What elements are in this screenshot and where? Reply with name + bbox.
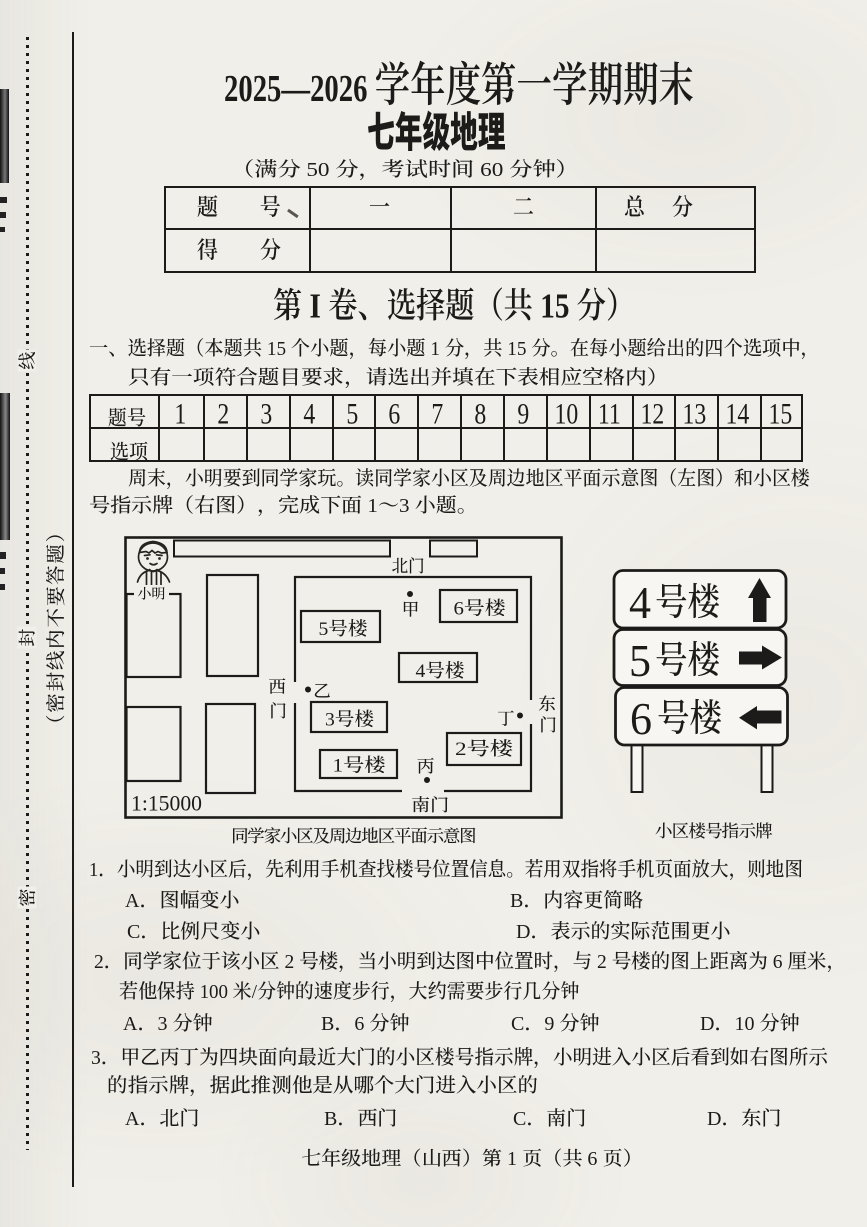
svg-text:门: 门	[269, 698, 287, 723]
svg-text:西: 西	[268, 674, 286, 699]
svg-text:5: 5	[629, 635, 651, 686]
svg-text:5号楼: 5号楼	[319, 614, 368, 641]
svg-text:1:15000: 1:15000	[131, 792, 202, 815]
svg-text:3号楼: 3号楼	[325, 705, 374, 732]
svg-text:号楼: 号楼	[655, 571, 720, 626]
svg-text:4: 4	[629, 577, 651, 628]
svg-text:号楼: 号楼	[655, 629, 720, 684]
svg-text:甲: 甲	[402, 597, 420, 622]
svg-text:6: 6	[630, 693, 652, 744]
svg-text:北门: 北门	[392, 553, 425, 578]
svg-text:2号楼: 2号楼	[455, 734, 513, 761]
svg-text:号楼: 号楼	[657, 687, 722, 742]
svg-text:1号楼: 1号楼	[333, 751, 386, 778]
svg-text:丁: 丁	[497, 706, 515, 731]
svg-text:南门: 南门	[411, 792, 449, 817]
svg-text:小明: 小明	[138, 584, 166, 604]
svg-text:4号楼: 4号楼	[416, 656, 465, 683]
svg-text:乙: 乙	[313, 678, 331, 703]
svg-text:门: 门	[539, 712, 557, 737]
svg-text:丙: 丙	[417, 753, 435, 778]
svg-text:6号楼: 6号楼	[454, 594, 506, 621]
